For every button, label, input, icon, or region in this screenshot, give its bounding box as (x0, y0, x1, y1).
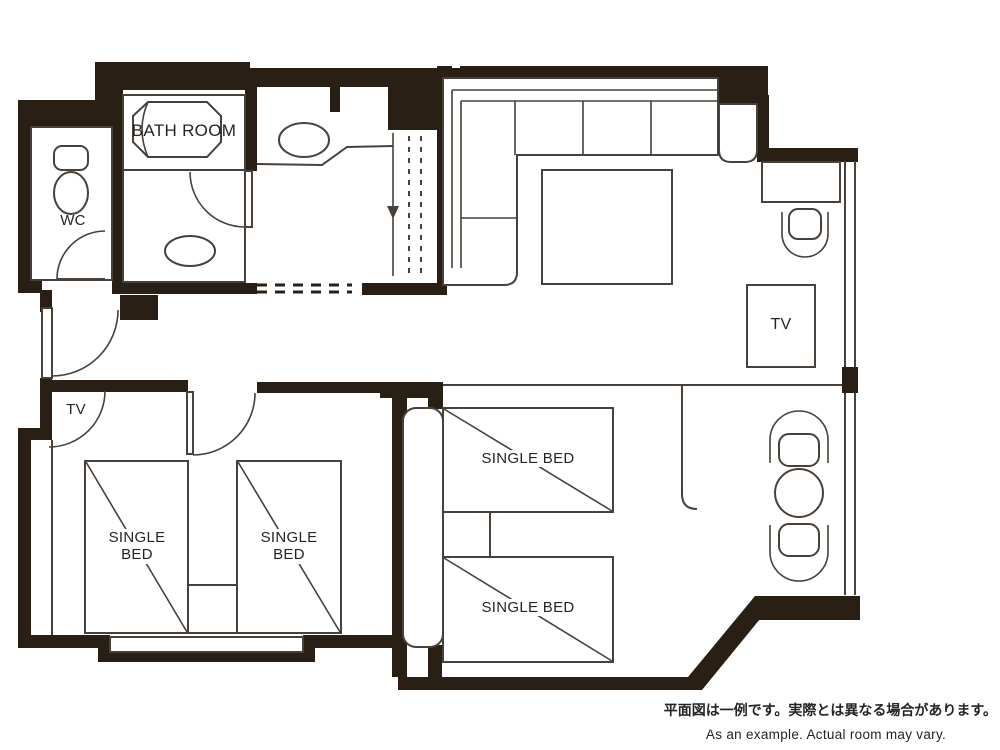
desk-chair (782, 209, 828, 257)
chair-bottom (770, 524, 828, 581)
sofa-armrest (719, 104, 757, 162)
corner-tv-arc (49, 391, 105, 447)
coffee-table (542, 170, 672, 284)
washbasin-sink (279, 123, 329, 157)
cabinet (762, 162, 840, 202)
bay-window (110, 637, 303, 652)
hotel-room-floorplan: BATH ROOM WC TV TV SINGLE BED SINGLE BED… (0, 0, 1000, 750)
toilet (54, 146, 88, 214)
bedroom-partition (682, 386, 697, 509)
single-bed-label-2: SINGLE BED (452, 599, 604, 616)
nightstand-left (188, 585, 237, 633)
bathroom-door (190, 171, 252, 227)
round-table (775, 469, 823, 517)
wc-door (57, 231, 105, 279)
closet-arrow-icon (387, 206, 399, 219)
single-bed-label-a: SINGLE BED (93, 529, 181, 564)
bathroom-label: BATH ROOM (123, 121, 245, 141)
headboard (403, 408, 443, 647)
tv-living-label: TV (747, 316, 815, 334)
washbasin-counter (257, 123, 393, 165)
disclaimer-japanese: 平面図は一例です。実際とは異なる場合があります。 (540, 702, 997, 718)
closet (387, 133, 421, 278)
disclaimer-english: As an example. Actual room may vary. (655, 727, 997, 743)
floorplan-drawing (0, 0, 1000, 750)
single-bed-label-b: SINGLE BED (245, 529, 333, 564)
entrance-door (42, 308, 118, 378)
nightstand-right (443, 512, 490, 557)
single-bed-label-1: SINGLE BED (452, 450, 604, 467)
closet-hanger-rail (409, 136, 421, 278)
chair-top (770, 411, 828, 466)
wc-label: WC (53, 212, 93, 229)
tv-bedroom-label: TV (55, 401, 97, 418)
bedroom-door (187, 392, 255, 455)
hallway-opening-dashed (257, 285, 352, 292)
vanity-sink (165, 236, 215, 266)
